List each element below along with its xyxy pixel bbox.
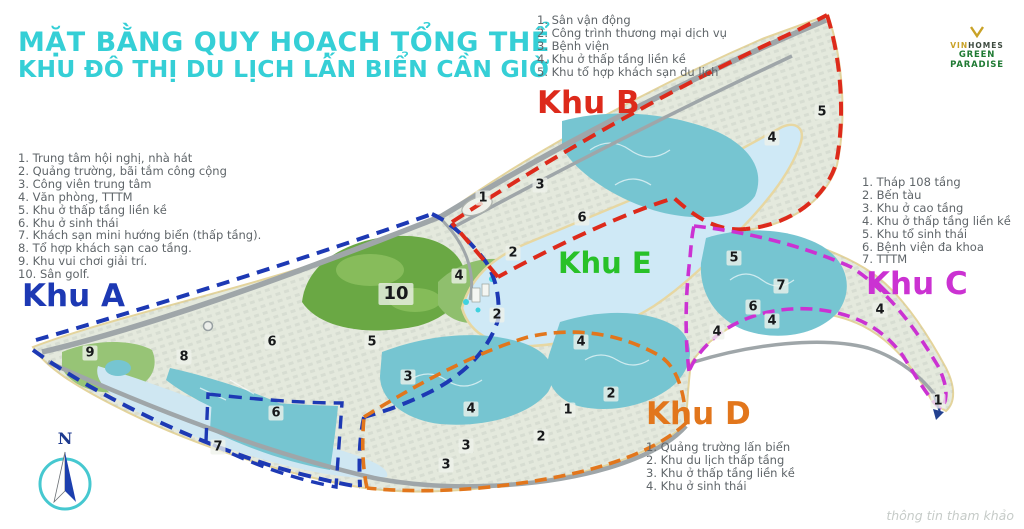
legend-item: 5. Khu ở thấp tầng liền kề	[18, 204, 261, 217]
map-marker: 4	[764, 314, 779, 329]
map-marker: 3	[438, 458, 453, 473]
zone-label-khu-d: Khu D	[646, 396, 751, 432]
legend-item: 3. Công viên trung tâm	[18, 178, 261, 191]
map-marker: 7	[210, 440, 225, 455]
masterplan-canvas: MẶT BẰNG QUY HOẠCH TỔNG THỂ KHU ĐÔ THỊ D…	[0, 0, 1024, 529]
map-marker: 3	[400, 370, 415, 385]
map-marker: 1	[930, 394, 945, 409]
legend-item: 7. TTTM	[862, 253, 1011, 266]
legend-item: 5. Khu tổ sinh thái	[862, 228, 1011, 241]
page-title: MẶT BẰNG QUY HOẠCH TỔNG THỂ KHU ĐÔ THỊ D…	[18, 28, 550, 83]
title-line-1: MẶT BẰNG QUY HOẠCH TỔNG THỂ	[18, 28, 550, 57]
project-name: GREEN PARADISE	[935, 51, 1019, 71]
map-marker: 9	[82, 346, 97, 361]
legend-item: 4. Khu ở thấp tầng liền kề	[537, 53, 727, 66]
map-marker: 7	[773, 279, 788, 294]
map-marker: 3	[458, 439, 473, 454]
map-marker: 2	[489, 308, 504, 323]
map-marker: 3	[532, 178, 547, 193]
legend-item: 3. Khu ở thấp tầng liền kề	[646, 467, 795, 480]
legend-item: 3. Bệnh viện	[537, 40, 727, 53]
legend-item: 2. Quảng trường, bãi tắm công cộng	[18, 165, 261, 178]
zone-label-khu-a: Khu A	[22, 278, 125, 314]
legend-item: 1. Quảng trường lấn biển	[646, 441, 795, 454]
title-line-2: KHU ĐÔ THỊ DU LỊCH LẤN BIỂN CẦN GIỜ	[18, 57, 550, 82]
map-marker: 4	[451, 269, 466, 284]
map-marker: 8	[176, 350, 191, 365]
compass-rose: N	[27, 428, 103, 524]
legend-item: 5. Khu tổ hợp khách sạn du lịch	[537, 66, 727, 79]
legend-item: 1. Sân vận động	[537, 14, 727, 27]
map-marker: 10	[378, 283, 413, 305]
map-marker: 4	[573, 335, 588, 350]
legend-list-khu-c: 1. Tháp 108 tầng2. Bến tàu3. Khu ở cao t…	[862, 176, 1011, 266]
map-marker: 5	[364, 335, 379, 350]
legend-item: 4. Khu ở thấp tầng liền kề	[862, 215, 1011, 228]
legend-item: 4. Khu ở sinh thái	[646, 480, 795, 493]
roundabout	[204, 322, 213, 331]
brand-emblem-icon	[969, 25, 985, 38]
map-marker: 5	[814, 105, 829, 120]
brand-logo: VINHOMES GREEN PARADISE	[935, 24, 1019, 71]
map-marker: 6	[264, 335, 279, 350]
zone-label-khu-e: Khu E	[558, 246, 652, 280]
legend-list-khu-d: 1. Quảng trường lấn biển2. Khu du lịch t…	[646, 441, 795, 493]
legend-item: 1. Trung tâm hội nghị, nhà hát	[18, 152, 261, 165]
zone-label-khu-c: Khu C	[866, 266, 968, 302]
map-marker: 2	[603, 387, 618, 402]
map-marker: 4	[764, 131, 779, 146]
map-marker: 6	[574, 211, 589, 226]
map-marker: 2	[505, 246, 520, 261]
compass-north-label: N	[58, 429, 73, 448]
map-marker: 4	[709, 325, 724, 340]
map-marker: 1	[560, 403, 575, 418]
map-marker: 4	[872, 303, 887, 318]
map-marker: 2	[533, 430, 548, 445]
legend-list-khu-b: 1. Sân vận động2. Công trình thương mại …	[537, 14, 727, 79]
legend-item: 4. Văn phòng, TTTM	[18, 191, 261, 204]
legend-item: 2. Bến tàu	[862, 189, 1011, 202]
reference-watermark: thông tin tham khảo	[886, 508, 1014, 523]
legend-item: 2. Khu du lịch thấp tầng	[646, 454, 795, 467]
golf-green-patch	[336, 254, 404, 286]
map-marker: 1	[475, 191, 490, 206]
legend-item: 1. Tháp 108 tầng	[862, 176, 1011, 189]
map-marker: 6	[268, 406, 283, 421]
zone-label-khu-b: Khu B	[537, 85, 640, 121]
map-marker: 4	[463, 402, 478, 417]
legend-list-khu-a: 1. Trung tâm hội nghị, nhà hát2. Quảng t…	[18, 152, 261, 281]
legend-item: 2. Công trình thương mại dịch vụ	[537, 27, 727, 40]
legend-item: 3. Khu ở cao tầng	[862, 202, 1011, 215]
map-marker: 5	[726, 251, 741, 266]
map-marker: 6	[745, 300, 760, 315]
